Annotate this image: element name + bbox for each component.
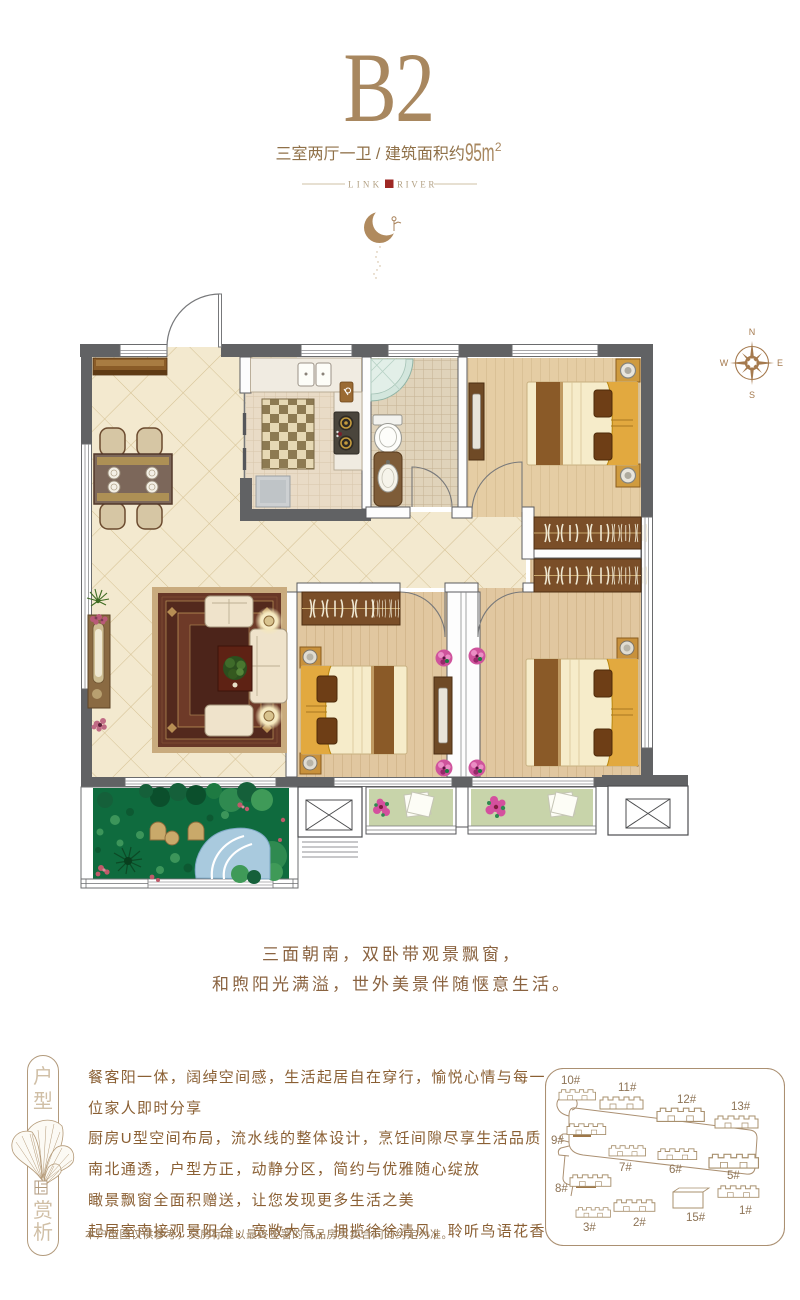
svg-text:S: S bbox=[749, 390, 755, 400]
svg-text:11#: 11# bbox=[618, 1082, 637, 1094]
svg-text:8#: 8# bbox=[555, 1183, 568, 1195]
svg-text:9#: 9# bbox=[551, 1135, 564, 1147]
svg-text:N: N bbox=[749, 327, 756, 337]
svg-text:型: 型 bbox=[33, 1090, 53, 1113]
svg-text:RIVER: RIVER bbox=[397, 180, 437, 190]
svg-text:1#: 1# bbox=[739, 1205, 752, 1217]
svg-text:3#: 3# bbox=[583, 1222, 596, 1234]
svg-text:赏: 赏 bbox=[33, 1199, 53, 1222]
svg-text:12#: 12# bbox=[677, 1094, 697, 1106]
svg-text:LINK: LINK bbox=[348, 180, 382, 190]
svg-text:6#: 6# bbox=[669, 1164, 682, 1176]
svg-text:5#: 5# bbox=[727, 1170, 740, 1182]
svg-text:析: 析 bbox=[33, 1221, 53, 1244]
svg-text:7#: 7# bbox=[619, 1162, 632, 1174]
svg-text:13#: 13# bbox=[731, 1101, 751, 1113]
svg-text:户: 户 bbox=[33, 1065, 53, 1088]
svg-text:15#: 15# bbox=[686, 1212, 706, 1224]
svg-text:W: W bbox=[720, 358, 729, 368]
svg-text:10#: 10# bbox=[561, 1075, 581, 1087]
svg-text:E: E bbox=[777, 358, 783, 368]
svg-text:2#: 2# bbox=[633, 1217, 646, 1229]
